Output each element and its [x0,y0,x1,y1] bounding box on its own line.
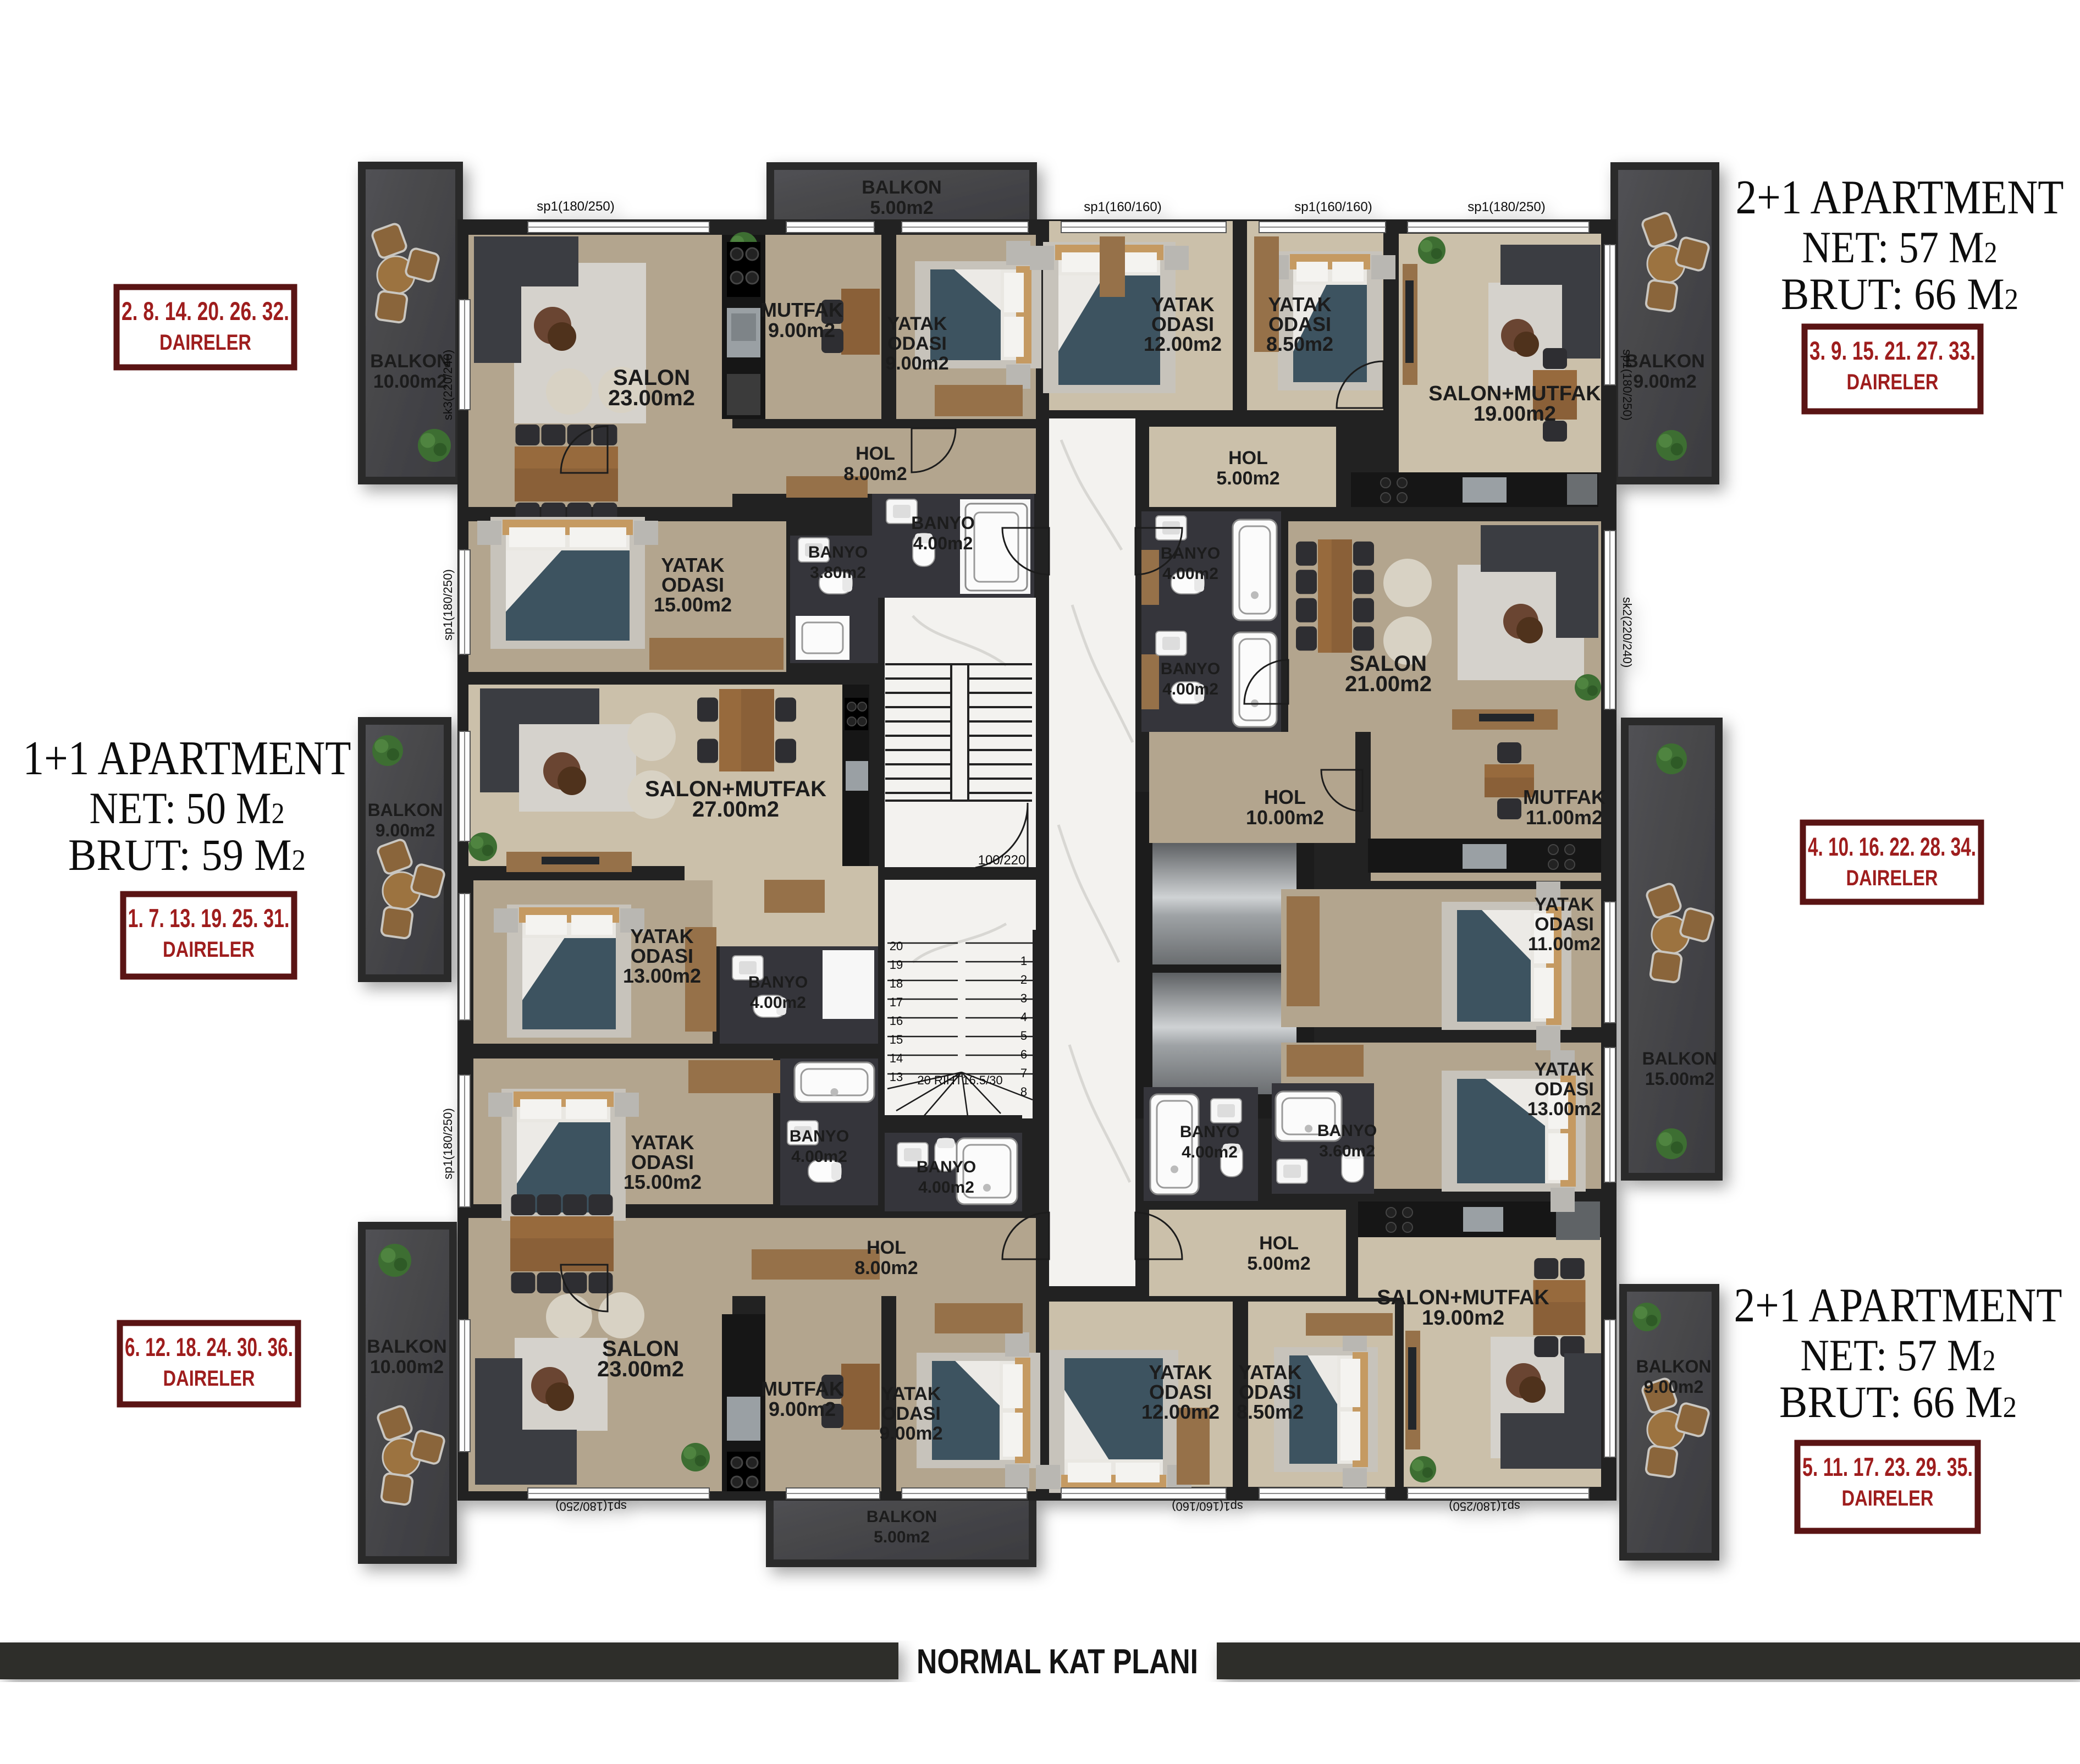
svg-text:HOL: HOL [1228,448,1268,468]
svg-text:3.60m2: 3.60m2 [1319,1142,1375,1160]
svg-text:DAIRELER: DAIRELER [1846,866,1938,890]
svg-text:1: 1 [1020,954,1027,968]
svg-text:4.00m2: 4.00m2 [1162,565,1218,583]
svg-text:YATAK: YATAK [881,1383,941,1404]
svg-text:BANYO: BANYO [911,513,975,533]
svg-text:NET: 57 M2: NET: 57 M2 [1801,1330,1996,1380]
svg-text:sp1(180/250): sp1(180/250) [441,569,455,641]
svg-text:DAIRELER: DAIRELER [1847,370,1939,394]
svg-text:9.00m2: 9.00m2 [879,1423,942,1444]
svg-text:BANYO: BANYO [748,973,808,991]
svg-text:BRUT: 66 M2: BRUT: 66 M2 [1781,269,2018,319]
svg-text:YATAK: YATAK [1268,293,1331,316]
svg-text:DAIRELER: DAIRELER [1842,1486,1934,1511]
svg-text:4. 10. 16. 22. 28. 34.: 4. 10. 16. 22. 28. 34. [1808,832,1976,861]
svg-text:BANYO: BANYO [1180,1123,1239,1141]
svg-text:19.00m2: 19.00m2 [1474,403,1556,426]
svg-text:2. 8. 14. 20. 26. 32.: 2. 8. 14. 20. 26. 32. [122,296,289,326]
svg-text:9.00m2: 9.00m2 [1644,1377,1704,1397]
svg-text:20 RIHT16.5/30: 20 RIHT16.5/30 [917,1073,1002,1087]
svg-text:4.00m2: 4.00m2 [918,1178,974,1197]
svg-text:ODASI: ODASI [1268,313,1331,335]
svg-text:sp1(180/250): sp1(180/250) [1620,349,1634,421]
svg-text:sp1(180/250): sp1(180/250) [555,1500,627,1513]
svg-text:10.00m2: 10.00m2 [373,371,447,392]
svg-text:YATAK: YATAK [1151,293,1214,316]
svg-text:6: 6 [1020,1048,1027,1061]
svg-text:13.00m2: 13.00m2 [1527,1099,1601,1120]
svg-text:10.00m2: 10.00m2 [370,1357,444,1377]
svg-text:YATAK: YATAK [661,554,724,576]
svg-text:4.00m2: 4.00m2 [1162,680,1218,698]
svg-text:ODASI: ODASI [1239,1381,1301,1403]
svg-text:5: 5 [1020,1029,1027,1043]
svg-text:BANYO: BANYO [790,1127,849,1145]
svg-text:5. 11. 17. 23. 29. 35.: 5. 11. 17. 23. 29. 35. [1802,1452,1973,1481]
svg-text:9.00m2: 9.00m2 [1633,371,1696,392]
svg-text:HOL: HOL [1259,1233,1299,1254]
svg-text:15.00m2: 15.00m2 [1645,1069,1714,1089]
svg-text:BANYO: BANYO [808,543,868,561]
svg-text:BRUT: 66 M2: BRUT: 66 M2 [1779,1377,2017,1427]
svg-text:15: 15 [890,1033,903,1046]
svg-text:ODASI: ODASI [881,1403,941,1424]
svg-text:13.00m2: 13.00m2 [623,964,701,987]
svg-text:19: 19 [890,958,903,972]
svg-text:sk2(220/240): sk2(220/240) [1620,597,1634,668]
svg-text:ODASI: ODASI [631,945,693,967]
svg-text:BALKON: BALKON [367,1336,446,1357]
svg-text:5.00m2: 5.00m2 [1247,1253,1310,1274]
svg-text:YATAK: YATAK [1535,1059,1595,1080]
svg-text:ODASI: ODASI [1151,313,1214,335]
svg-text:14: 14 [890,1051,903,1065]
svg-text:NET: 57 M2: NET: 57 M2 [1802,222,1998,272]
svg-text:9.00m2: 9.00m2 [768,319,835,341]
svg-text:BANYO: BANYO [1317,1122,1377,1140]
svg-text:sp1(160/160): sp1(160/160) [1172,1500,1243,1513]
svg-text:MUTFAK: MUTFAK [760,299,843,321]
svg-text:YATAK: YATAK [631,1131,694,1154]
svg-text:3.80m2: 3.80m2 [810,564,866,582]
svg-text:4.00m2: 4.00m2 [750,994,806,1012]
svg-text:BALKON: BALKON [1625,351,1704,372]
svg-text:BALKON: BALKON [370,351,450,372]
svg-text:16: 16 [890,1014,903,1028]
svg-text:HOL: HOL [867,1237,906,1258]
svg-text:23.00m2: 23.00m2 [608,386,695,410]
svg-text:NORMAL KAT PLANI: NORMAL KAT PLANI [917,1642,1198,1681]
svg-text:100/220: 100/220 [978,853,1026,868]
svg-text:YATAK: YATAK [1149,1361,1212,1383]
svg-text:11.00m2: 11.00m2 [1528,934,1601,955]
svg-text:4.00m2: 4.00m2 [913,533,973,553]
svg-text:sp1(180/250): sp1(180/250) [1449,1500,1520,1513]
svg-text:2+1 APARTMENT: 2+1 APARTMENT [1736,171,2064,224]
svg-text:8.50m2: 8.50m2 [1237,1401,1304,1423]
svg-text:3: 3 [1020,991,1027,1005]
svg-text:7: 7 [1020,1066,1027,1080]
svg-text:5.00m2: 5.00m2 [1216,468,1279,489]
svg-text:19.00m2: 19.00m2 [1422,1307,1504,1330]
svg-text:sp1(160/160): sp1(160/160) [1084,200,1161,214]
svg-text:BANYO: BANYO [1161,544,1220,563]
svg-text:2+1 APARTMENT: 2+1 APARTMENT [1734,1279,2062,1332]
svg-text:MUTFAK: MUTFAK [1523,786,1605,808]
svg-text:YATAK: YATAK [887,313,947,334]
svg-text:YATAK: YATAK [630,925,693,947]
svg-text:23.00m2: 23.00m2 [597,1357,684,1381]
svg-text:DAIRELER: DAIRELER [163,1366,255,1391]
svg-text:10.00m2: 10.00m2 [1246,806,1324,829]
svg-text:BALKON: BALKON [867,1508,937,1526]
svg-text:BRUT: 59 M2: BRUT: 59 M2 [68,830,306,880]
svg-text:8.00m2: 8.00m2 [854,1258,918,1278]
svg-text:2: 2 [1020,973,1027,986]
svg-text:17: 17 [890,995,903,1009]
svg-text:12.00m2: 12.00m2 [1144,333,1222,355]
svg-text:DAIRELER: DAIRELER [163,938,255,962]
svg-text:27.00m2: 27.00m2 [692,797,779,822]
svg-text:5.00m2: 5.00m2 [874,1528,930,1546]
svg-text:13: 13 [890,1070,903,1084]
svg-text:YATAK: YATAK [1238,1361,1301,1383]
svg-text:HOL: HOL [1264,786,1306,808]
svg-text:18: 18 [890,977,903,990]
svg-text:9.00m2: 9.00m2 [885,353,948,374]
svg-text:YATAK: YATAK [1535,894,1595,915]
svg-text:BALKON: BALKON [1636,1357,1712,1376]
svg-text:BALKON: BALKON [368,800,443,820]
svg-text:1. 7. 13. 19. 25. 31.: 1. 7. 13. 19. 25. 31. [128,903,290,933]
svg-text:3. 9. 15. 21. 27. 33.: 3. 9. 15. 21. 27. 33. [1809,336,1976,365]
svg-text:NET: 50 M2: NET: 50 M2 [90,783,285,833]
svg-text:4: 4 [1020,1010,1027,1024]
svg-text:ODASI: ODASI [1535,1079,1594,1100]
svg-text:sp1(180/250): sp1(180/250) [1467,200,1545,214]
svg-text:4.00m2: 4.00m2 [1182,1143,1238,1161]
svg-text:sp1(180/250): sp1(180/250) [441,1108,455,1179]
svg-text:ODASI: ODASI [661,574,724,596]
svg-text:BANYO: BANYO [917,1158,976,1176]
svg-text:HOL: HOL [856,443,895,464]
svg-text:sp1(160/160): sp1(160/160) [1294,200,1372,214]
svg-text:sp1(180/250): sp1(180/250) [537,199,614,214]
svg-text:15.00m2: 15.00m2 [654,593,732,616]
svg-text:21.00m2: 21.00m2 [1345,672,1432,696]
svg-text:ODASI: ODASI [631,1151,694,1173]
svg-text:8.00m2: 8.00m2 [843,464,907,484]
svg-text:9.00m2: 9.00m2 [769,1398,836,1420]
svg-text:BANYO: BANYO [1161,660,1220,678]
svg-text:1+1 APARTMENT: 1+1 APARTMENT [23,732,351,785]
svg-text:ODASI: ODASI [1149,1381,1212,1403]
svg-text:BALKON: BALKON [862,177,941,198]
svg-text:20: 20 [890,939,903,953]
svg-text:4.00m2: 4.00m2 [791,1148,847,1166]
svg-text:8.50m2: 8.50m2 [1266,333,1333,355]
svg-text:11.00m2: 11.00m2 [1526,806,1603,829]
svg-text:sk3(220/240): sk3(220/240) [441,350,455,420]
svg-text:5.00m2: 5.00m2 [870,197,933,218]
svg-text:ODASI: ODASI [1535,914,1594,935]
svg-text:15.00m2: 15.00m2 [624,1171,702,1193]
svg-text:6. 12. 18. 24. 30. 36.: 6. 12. 18. 24. 30. 36. [125,1332,293,1361]
svg-text:SALON+MUTFAK: SALON+MUTFAK [1377,1286,1549,1309]
svg-text:9.00m2: 9.00m2 [376,820,435,840]
svg-text:BALKON: BALKON [1642,1049,1718,1068]
svg-text:MUTFAK: MUTFAK [761,1377,843,1400]
svg-text:12.00m2: 12.00m2 [1141,1401,1220,1423]
svg-text:DAIRELER: DAIRELER [159,330,251,355]
svg-text:SALON+MUTFAK: SALON+MUTFAK [1428,382,1601,405]
svg-text:ODASI: ODASI [887,333,947,354]
